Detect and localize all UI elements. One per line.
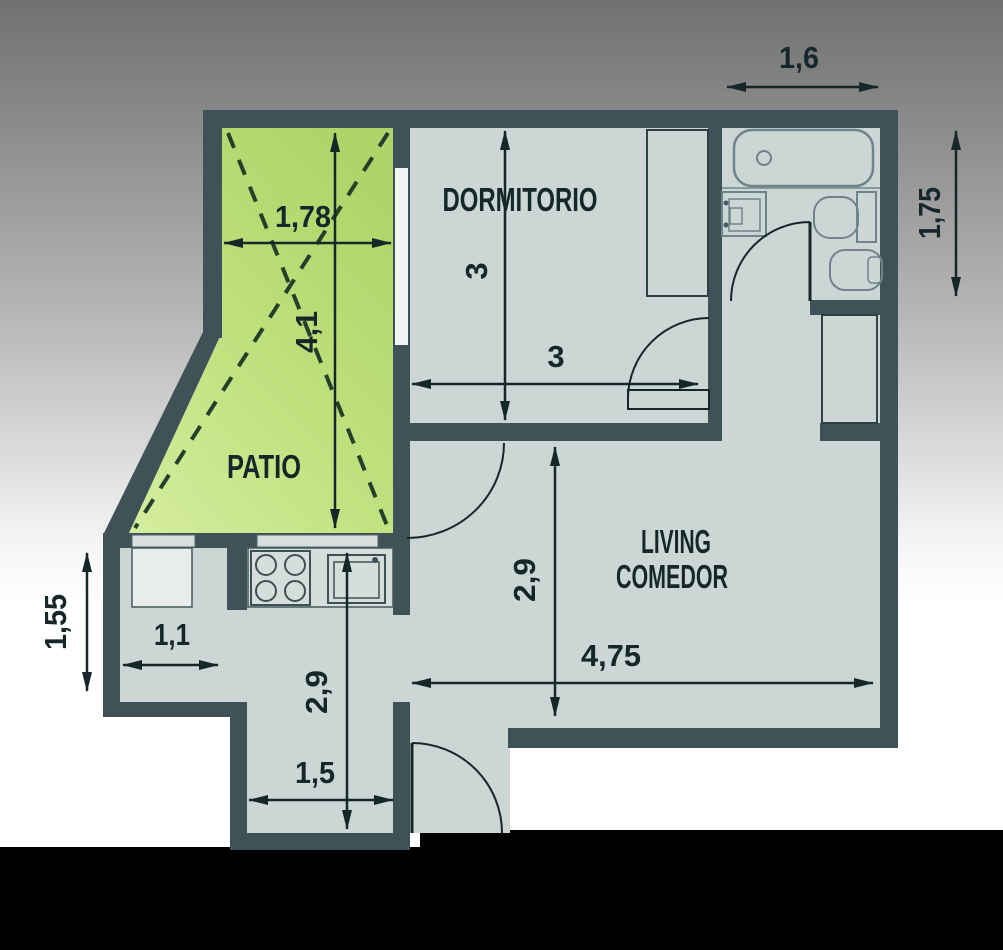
wall-top	[203, 110, 898, 128]
kitchen-doorway-gap	[393, 615, 410, 702]
living-label-line1: LIVING	[641, 523, 711, 560]
floor-plan-svg: DORMITORIO PATIO LIVING COMEDOR 1,6 1,75…	[0, 0, 1003, 950]
wall-kitchen-right-upper	[393, 530, 410, 615]
kitchen-cabinet	[132, 548, 192, 607]
patio-window	[395, 168, 408, 345]
dim-label-corridor-height: 2,9	[299, 670, 334, 714]
wall-left-lower	[103, 533, 120, 717]
wall-corridor-left	[230, 702, 247, 850]
wall-kitchen-bottom	[103, 702, 230, 717]
dim-label-dorm-width: 3	[547, 339, 564, 374]
dormitorio-floor	[410, 128, 710, 441]
dim-label-corridor-width: 1,5	[295, 755, 335, 790]
patio-label: PATIO	[227, 448, 301, 485]
bathroom-hall-floor	[722, 128, 880, 441]
wall-patio-left-upper	[203, 110, 222, 338]
living-label-line2: COMEDOR	[616, 558, 728, 595]
sink-knob-top	[724, 201, 729, 206]
dim-label-patio-height: 4,1	[289, 311, 324, 353]
wall-closet-bottom	[820, 423, 880, 441]
wall-bathroom-bottom	[810, 300, 898, 315]
patio-door-opening	[257, 535, 378, 547]
dim-label-nook-width: 1,1	[154, 617, 190, 652]
kitchen-sink-faucet	[372, 557, 378, 563]
bottom-black-bar	[0, 830, 1003, 950]
wall-right	[880, 110, 898, 748]
kitchen-window-left	[132, 535, 195, 547]
wall-corridor-bottom	[230, 833, 410, 850]
dim-label-living-width: 4,75	[581, 638, 641, 673]
wall-dormitorio-right	[708, 128, 722, 441]
dim-label-bath-width: 1,6	[779, 40, 819, 75]
dim-label-living-height: 2,9	[507, 558, 542, 602]
dim-label-patio-width: 1,78	[275, 199, 331, 234]
wall-corridor-right	[393, 702, 410, 850]
dim-label-nook-height: 1,55	[38, 594, 73, 650]
dim-label-bath-height: 1,75	[912, 187, 947, 239]
wall-living-bottom	[508, 728, 898, 748]
sink-knob-bottom	[724, 223, 729, 228]
wall-kitchen-pier	[227, 533, 247, 610]
dim-label-dorm-height: 3	[459, 262, 494, 279]
dormitorio-label: DORMITORIO	[443, 181, 598, 218]
floor-plan-canvas: DORMITORIO PATIO LIVING COMEDOR 1,6 1,75…	[0, 0, 1003, 950]
wall-dormitorio-bottom	[408, 423, 722, 441]
